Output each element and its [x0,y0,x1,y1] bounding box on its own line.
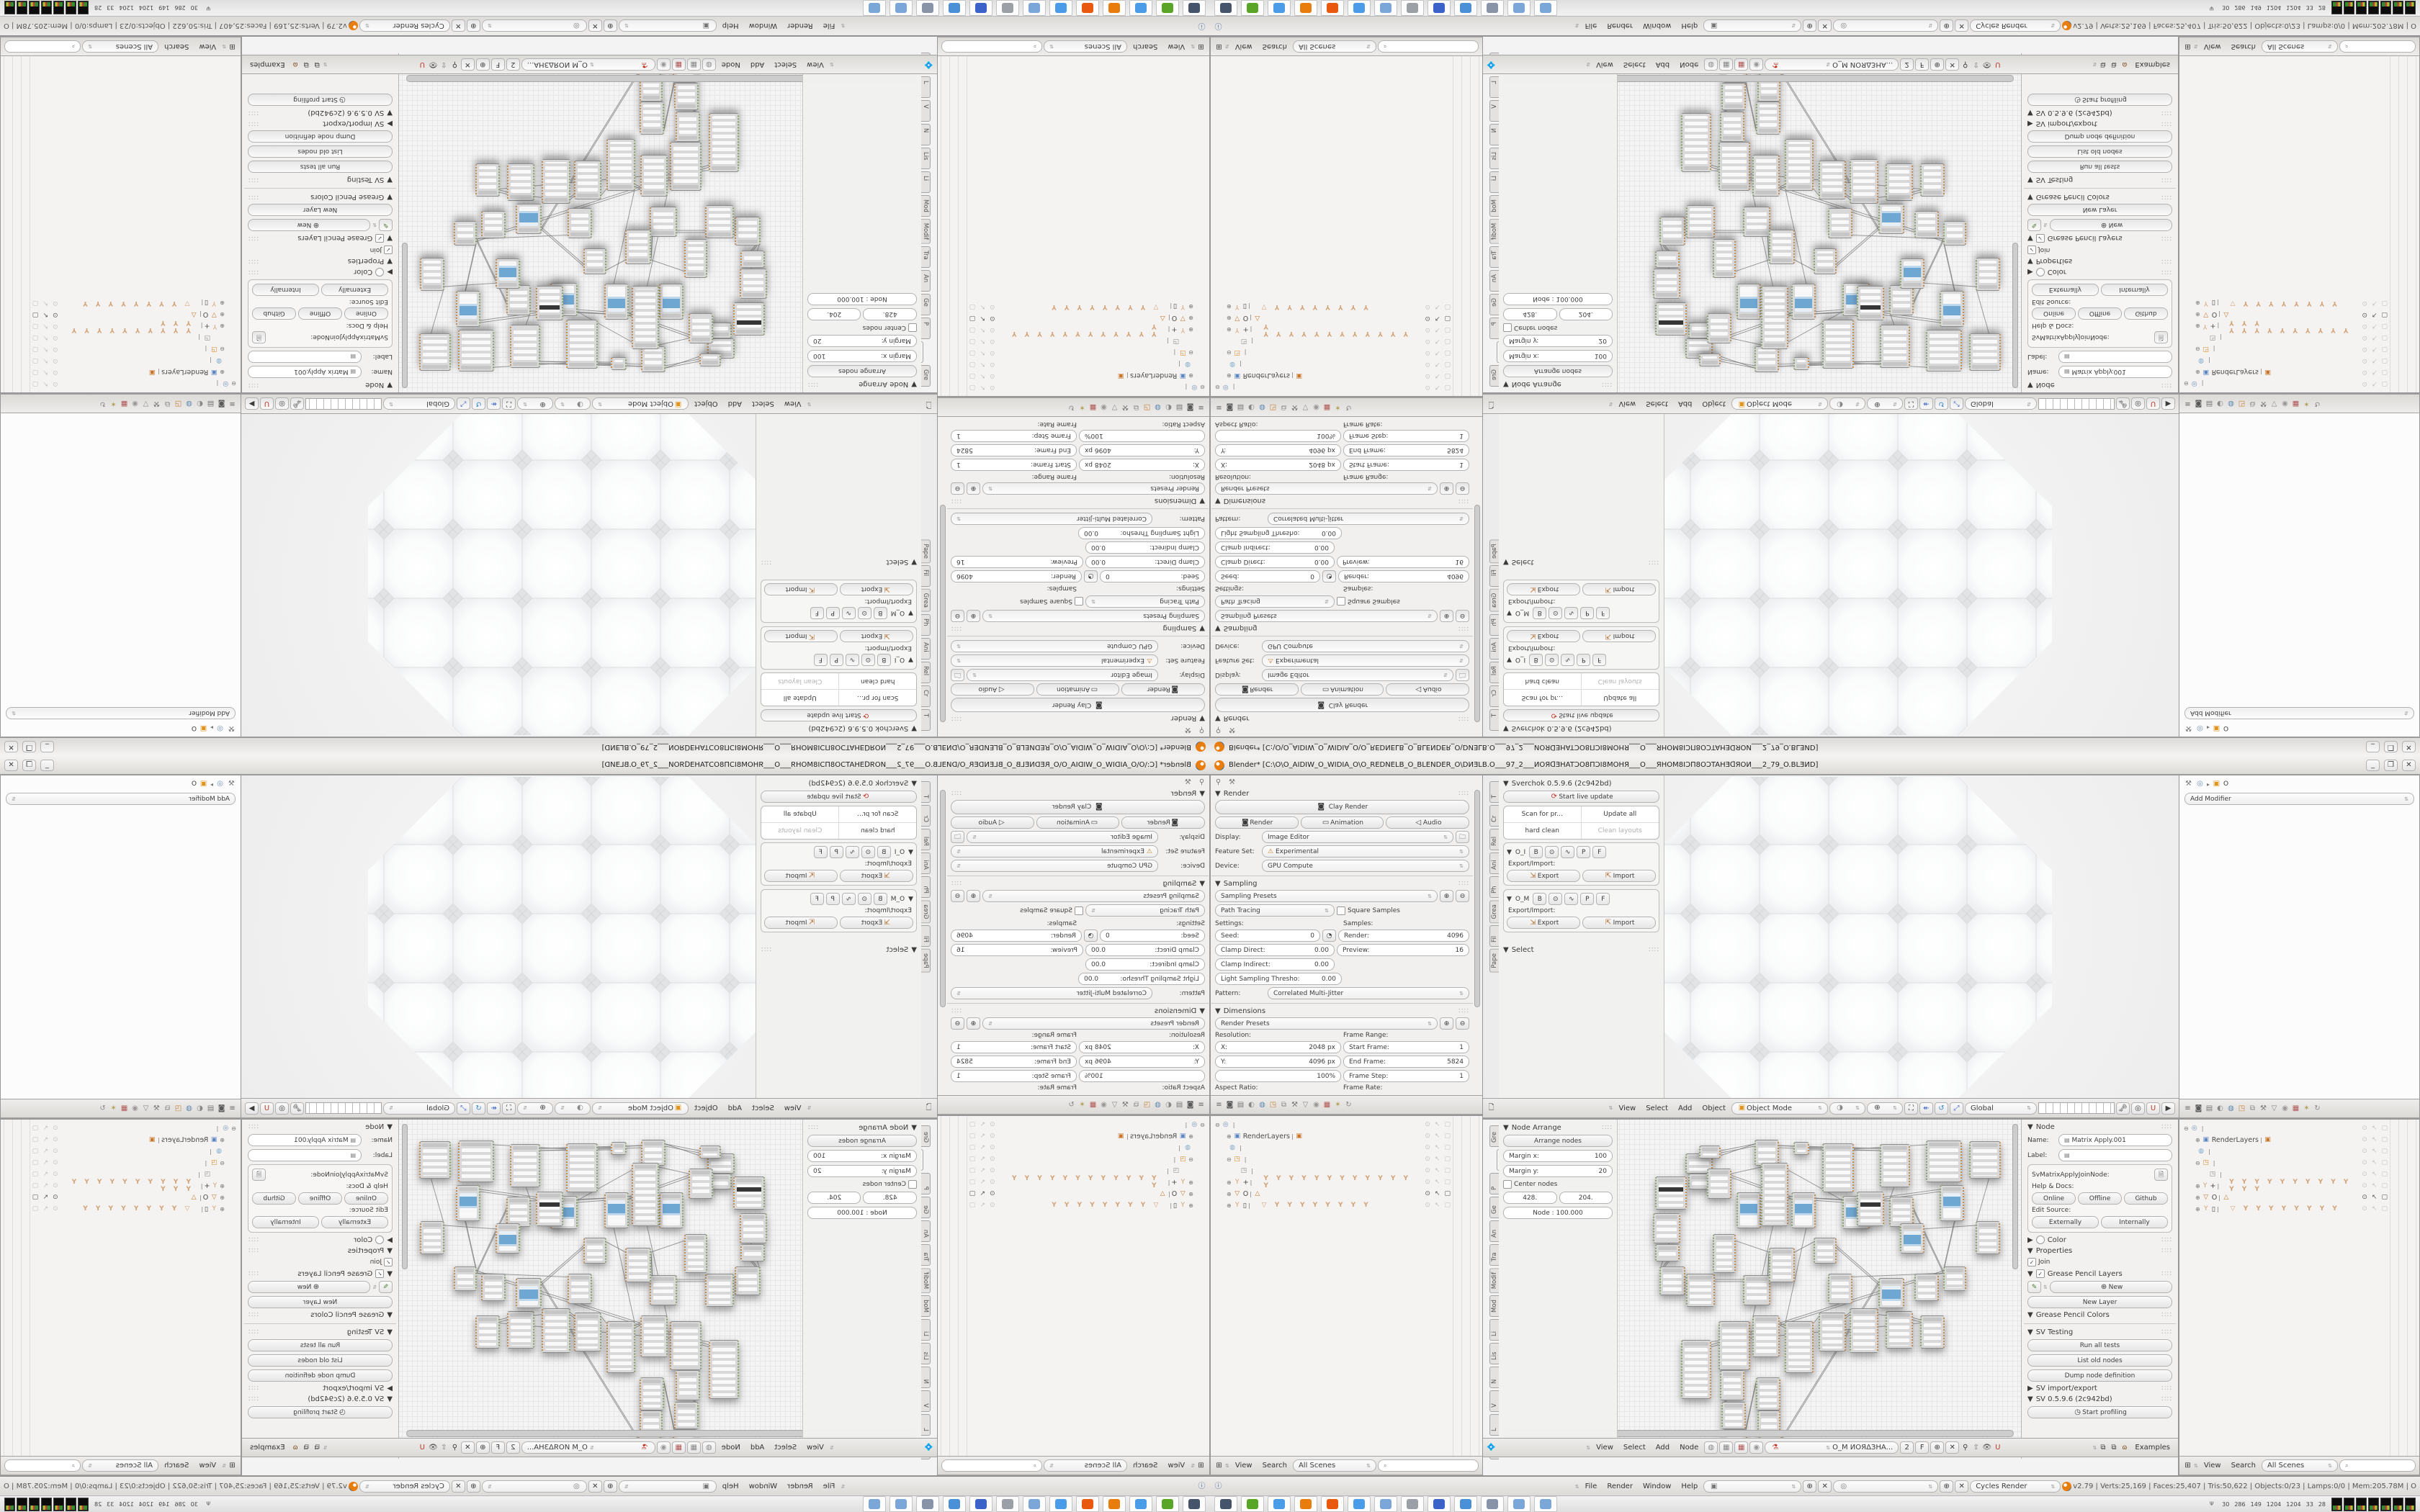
properties-tab-icon[interactable]: ◉ [2280,1104,2290,1113]
node-n-panel-scrollbar[interactable] [402,243,408,388]
start-profiling-button[interactable]: ◷Start profiling [2027,94,2172,106]
node-category-tab[interactable]: An [921,270,931,292]
restriction-toggles[interactable]: ⊙↖▢ [967,384,995,391]
restriction-toggles[interactable]: ⊙↖▢ [2362,1125,2390,1132]
node-category-tab[interactable]: Tra [1489,246,1499,268]
orientation-select[interactable]: Global⇅ [1965,398,2037,410]
shader-nodes-button[interactable]: ◍ [1704,58,1718,71]
restriction-toggles[interactable]: ⊙↖▢ [2362,311,2390,318]
sverchok-node[interactable] [1718,1321,1750,1370]
restriction-toggles[interactable]: ⊙↖▢ [967,1167,995,1174]
end-frame-field[interactable]: End Frame:5824 [951,1056,1077,1068]
online-docs-button[interactable]: Online [344,1192,388,1205]
resolution-percent-field[interactable]: 100% [1079,430,1205,442]
outliner-search-input[interactable]: ⌕ [4,40,81,53]
node-tree-select[interactable]: ⚗⇅ O_M ИОЯΔЗНА... [521,58,655,71]
paste-icon[interactable]: ⧉ [2109,1443,2118,1452]
shader-nodes-button[interactable]: ◍ [702,1441,716,1454]
sverchok-node[interactable] [1878,1278,1904,1308]
outliner-row[interactable]: ⊕ ▣ RenderLayers | ▣ ⊙↖▢ [1214,370,1453,382]
update-all-button[interactable]: Update all [761,689,839,706]
restriction-toggles[interactable]: ⊙↖▢ [2362,1182,2390,1189]
outliner-row[interactable]: ⊖ ◳ | ⊙↖▢ [2182,343,2390,355]
properties-tab-icon[interactable]: ⚒ [1121,402,1130,412]
node-node-menu[interactable]: Node [1675,60,1703,68]
window-titlebar[interactable]: Blender* [C:\O\O_AIDIW_O_WIDIA_O\O_REDNE… [1210,756,2420,775]
sverchok-node[interactable] [689,1169,713,1199]
outliner-item-label[interactable]: + [204,323,210,330]
node-category-tab[interactable]: Tra [921,246,931,268]
outliner-row[interactable]: ◍ | ⊙↖▢ [967,1142,1206,1153]
node-category-tab[interactable]: Ge [921,1197,931,1218]
restriction-toggles[interactable]: ⊙↖▢ [2362,300,2390,307]
gp-colors-panel-header[interactable]: ▼Grease Pencil Colors∷∷ [2027,193,2172,201]
bake-button[interactable]: B [874,893,887,905]
properties-tab-icon[interactable]: ⧉ [163,399,172,408]
sverchok-node[interactable] [611,1142,627,1155]
system-monitor-graph[interactable] [41,1,52,15]
margin-y-field[interactable]: Margin y:20 [807,1165,917,1177]
clamp-direct-field[interactable]: Clamp Direct:0.00 [1085,556,1205,568]
samples-preview-field[interactable]: Preview:16 [951,556,1083,568]
restriction-toggles[interactable]: ⊙↖▢ [1425,1144,1453,1151]
export-button[interactable]: ⇲Export [840,583,913,595]
resolution-y-field[interactable]: Y:4096 px [1079,1056,1205,1068]
viewport-add-menu[interactable]: Add [724,400,746,408]
import-button[interactable]: ⇱Import [764,917,838,929]
sverchok-node[interactable] [568,1274,592,1304]
online-docs-button[interactable]: Online [2032,1192,2076,1205]
remove-preset-button[interactable]: ⊖ [1456,890,1469,902]
scene-select[interactable]: ◎⇅ [482,1480,587,1493]
sampling-panel-header[interactable]: ▼Sampling∷∷ [1215,880,1469,888]
system-monitor-graph[interactable] [66,1,76,15]
system-monitor-graph[interactable] [2393,1498,2403,1511]
render-presets-select[interactable]: Render Presets⇅ [982,1017,1205,1030]
properties-tab-icon[interactable]: ↻ [1344,402,1353,412]
outliner-row[interactable]: ⊖ ◎ | ⊙↖▢ [967,1119,1206,1130]
system-monitor-graph[interactable] [2331,1,2342,15]
properties-tab-icon[interactable]: ↻ [98,399,107,408]
sverchok-node[interactable] [568,208,592,238]
sverchok-node[interactable] [1926,330,1962,372]
fake-user-button[interactable]: F [810,607,824,619]
sverchok-node[interactable] [684,239,707,278]
properties-tab-icon[interactable]: ◙ [1225,402,1234,412]
outliner-row[interactable]: ⊖ ◎ | ⊙↖▢ [2182,1122,2390,1134]
random-seed-icon[interactable]: ◔ [1322,570,1336,582]
taskbar-app-icon[interactable] [1374,0,1397,16]
node-category-tab[interactable]: Li [921,171,931,193]
clamp-direct-field[interactable]: Clamp Direct:0.00 [1215,556,1335,568]
sv-testing-panel-header[interactable]: ▼SV Testing∷∷ [2027,176,2172,184]
properties-tab-icon[interactable]: ▤ [206,399,215,408]
unlink-tree-button[interactable]: ✕ [1945,1441,1959,1454]
restriction-toggles[interactable]: ⊙↖▢ [30,1171,58,1178]
node-category-tab[interactable]: Ge [1489,294,1499,315]
samples-render-field[interactable]: Render:4096 [1338,930,1469,942]
file-menu[interactable]: File [819,22,840,30]
properties-tab-icon[interactable]: ◉ [1099,1100,1108,1110]
expand-toggle[interactable]: ⊕ [2195,323,2200,330]
sverchok-node[interactable] [1686,1274,1715,1307]
maximize-button[interactable]: ❐ [2384,742,2398,753]
restriction-toggles[interactable]: ⊙↖▢ [1425,1190,1453,1197]
tool-shelf-tab[interactable]: Grea [921,900,931,923]
properties-tab-icon[interactable]: ✶ [1333,1100,1343,1110]
show-viewport-button[interactable]: ⊙ [1545,846,1559,858]
properties-tab-icon[interactable]: ◐ [1164,1100,1173,1110]
sverchok-panel-header[interactable]: ▼Sverchok 0.5.9.6 (2c942bd) [1503,724,1659,732]
sverchok-node[interactable] [640,155,668,197]
restriction-toggles[interactable]: ⊙↖▢ [2362,1136,2390,1143]
node-select-menu[interactable]: Select [770,60,801,68]
restriction-toggles[interactable]: ⊙↖▢ [967,315,995,322]
screen-layout-select[interactable]: ▣⇅ [619,19,717,32]
outliner-row[interactable]: ⊕ Y + | Y Y Y Y Y Y Y Y Y Y Y Y Y ⊙↖▢ [30,320,238,332]
sverchok-node[interactable] [1756,1377,1780,1410]
properties-tab-icon[interactable]: ◳ [1142,1100,1152,1110]
run-all-tests-button[interactable]: Run all tests [2027,1339,2172,1351]
sverchok-node[interactable] [1828,208,1852,238]
sverchok-node[interactable] [1653,1213,1680,1243]
outliner-item-label[interactable]: ▯ [1173,1202,1177,1210]
render-menu[interactable]: Render [783,1482,817,1490]
sverchok-node[interactable] [583,248,606,274]
remove-preset-button[interactable]: ⊖ [1456,1017,1469,1030]
clean-layouts-button[interactable]: Clean layouts [761,673,839,689]
mode-select[interactable]: ▣ Object Mode⇅ [1731,398,1828,410]
taskbar-app-icon[interactable] [1103,0,1126,16]
margin-x-field[interactable]: Margin x:100 [1503,1150,1613,1162]
online-docs-button[interactable]: Online [2032,307,2076,320]
outliner-display-select[interactable]: All Scenes⇅ [82,40,158,53]
tool-shelf-tab[interactable]: Rel [1489,829,1499,850]
restriction-toggles[interactable]: ⊙↖▢ [1425,384,1453,391]
sverchok-nodes-button[interactable]: ◉ [1749,58,1763,71]
sverchok-node[interactable] [574,161,601,199]
docs-icon-button[interactable]: 🗎 [252,1169,266,1181]
expand-toggle[interactable]: ⊕ [1188,1191,1193,1197]
outliner-row[interactable]: ⊕ ▣ RenderLayers | ▣ ⊙↖▢ [1214,1130,1453,1142]
node-category-tab[interactable]: N [921,1367,931,1388]
bake-button[interactable]: B [877,654,891,666]
sverchok-node[interactable] [733,1176,765,1210]
taskbar-app-icon[interactable] [889,1496,913,1512]
properties-tab-icon[interactable]: ▦ [120,399,129,408]
start-live-update-button[interactable]: ⟳Start live update [761,709,917,721]
node-add-menu[interactable]: Add [746,60,768,68]
delete-layout-button[interactable]: ✕ [1818,1480,1832,1493]
clean-layouts-button[interactable]: Clean layouts [1582,823,1659,839]
sverchok-node[interactable] [641,1140,665,1166]
properties-tab-icon[interactable]: ◳ [1142,402,1152,412]
restriction-toggles[interactable]: ⊙↖▢ [30,380,58,387]
expand-toggle[interactable]: ⊕ [2195,300,2200,307]
sverchok-node[interactable] [456,1185,480,1221]
node-category-tab[interactable]: L [1489,1414,1499,1436]
node-category-tab[interactable]: Lis [1489,1343,1499,1364]
sverchok-node[interactable] [659,1192,684,1228]
online-docs-button[interactable]: Online [344,307,388,320]
sverchok-node[interactable] [709,1340,739,1399]
sverchok-node[interactable] [1754,1140,1779,1166]
tool-shelf-tab[interactable]: Ani [1489,638,1499,660]
render-menu[interactable]: Render [1603,1482,1637,1490]
fake-user-button[interactable]: F [1592,846,1606,858]
window-titlebar[interactable]: Blender* [C:\O\O_AIDIW_O_WIDIA_O\O_REDNE… [1210,737,2420,756]
properties-tab-icon[interactable]: ⧉ [163,1104,172,1113]
animate-button[interactable]: ∿ [1564,893,1578,905]
sverchok-node[interactable] [674,83,699,110]
outliner-row[interactable]: ◍ | ⊙↖▢ [30,355,238,366]
outliner-view-menu[interactable]: View [194,1462,220,1470]
node-panel-header[interactable]: ▼Node∷∷ [248,1123,393,1131]
pin-icon[interactable]: ⚲ [450,1443,460,1452]
expand-toggle[interactable]: ⊖ [1188,1156,1193,1163]
wrench-icon[interactable]: ⚒ [1183,778,1193,787]
render-panel-header[interactable]: ▼ Render∷∷ [951,714,1205,722]
light-sampling-field[interactable]: Light Sampling Thresho:0.00 [1215,527,1342,539]
process-button[interactable]: P [826,607,840,619]
file-menu[interactable]: File [1581,1482,1602,1490]
properties-scrollbar[interactable] [940,505,946,722]
import-button[interactable]: ⇱Import [764,630,838,642]
snap-button[interactable]: U [260,1102,274,1115]
sverchok-node[interactable] [1819,1313,1846,1351]
tool-shelf-tab[interactable]: Ani [921,852,931,874]
outliner-item-label[interactable]: O [2212,1194,2217,1202]
pattern-select[interactable]: Correlated Multi-Jitter⇅ [1268,987,1469,999]
sverchok-node[interactable] [1718,142,1750,191]
sverchok-node[interactable] [566,1143,598,1192]
display-select[interactable]: Image Editor⇅ [967,831,1158,843]
viewport-object-menu[interactable]: Object [1698,400,1730,408]
outliner-search-menu[interactable]: Search [1258,1462,1291,1470]
tool-shelf-tab[interactable]: Ani [921,638,931,660]
sverchok-node[interactable] [1850,159,1878,204]
restriction-toggles[interactable]: ⊙↖▢ [967,326,995,333]
node-category-tab[interactable]: N [1489,1367,1499,1388]
add-modifier-select[interactable]: Add Modifier⇅ [2184,793,2414,805]
compositing-nodes-button[interactable]: ▦ [687,58,701,71]
node-scale-field[interactable]: Node : 100.000 [807,1207,917,1219]
node-category-tab[interactable]: Gre [921,365,931,387]
node-category-tab[interactable]: Tra [1489,1244,1499,1266]
mode-select[interactable]: ▣ Object Mode⇅ [592,398,689,410]
add-layout-button[interactable]: ⊕ [1803,1480,1816,1493]
sverchok-node[interactable] [1857,1192,1884,1226]
outliner-display-select[interactable]: All Scenes⇅ [82,1459,158,1472]
properties-tab-icon[interactable]: ◍ [2226,399,2236,408]
tool-shelf-tab[interactable]: Fil [921,925,931,947]
expand-toggle[interactable]: ⊖ [1200,1122,1205,1128]
node-category-tab[interactable]: V [1489,100,1499,122]
hard-clean-button[interactable]: hard clean [1504,823,1582,839]
wrench-icon[interactable]: ⚒ [1183,725,1193,734]
taskbar-app-icon[interactable] [1454,1496,1477,1512]
tree-users-button[interactable]: 2 [506,58,520,71]
node-category-tab[interactable]: Gre [921,1125,931,1147]
restriction-toggles[interactable]: ⊙↖▢ [1425,349,1453,356]
taskbar-app-icon[interactable] [1129,1496,1152,1512]
render-button[interactable]: ◙Render [1121,683,1205,696]
arrange-nodes-button[interactable]: Arrange nodes [1503,365,1613,377]
outliner-item-label[interactable]: O [1243,1190,1248,1198]
fake-user-button[interactable]: F [814,654,828,666]
expand-toggle[interactable]: ⊖ [2195,1160,2200,1166]
gp-new-button[interactable]: ⊕New [2050,219,2172,231]
dimensions-panel-header[interactable]: ▼Dimensions∷∷ [951,1007,1205,1015]
tool-shelf-tab[interactable]: Rel [1489,662,1499,683]
arrange-nodes-button[interactable]: Arrange nodes [807,365,917,377]
color-checkbox[interactable] [2036,1236,2045,1244]
animate-button[interactable]: ∿ [842,607,856,619]
restriction-toggles[interactable]: ⊙↖▢ [2362,334,2390,341]
tool-shelf-tab[interactable]: Rel [921,662,931,683]
node-category-tab[interactable]: P [1489,1173,1499,1194]
file-menu[interactable]: File [1581,22,1602,30]
outliner-item-label[interactable]: + [1243,1179,1249,1187]
node-category-tab[interactable]: Tra [921,1244,931,1266]
taskbar-app-icon[interactable] [1076,1496,1099,1512]
lock-interface-button[interactable]: 🗀 [951,669,964,681]
expand-toggle[interactable]: ⊕ [220,1194,225,1201]
sampling-presets-select[interactable]: Sampling Presets⇅ [1215,610,1438,622]
hard-clean-button[interactable]: hard clean [839,673,917,689]
node-category-tab[interactable]: Li [1489,1319,1499,1341]
restriction-toggles[interactable]: ⊙↖▢ [1425,1121,1453,1128]
node-add-menu[interactable]: Add [1652,1444,1674,1452]
snap-icon[interactable]: U [418,60,427,69]
node-n-panel-scrollbar[interactable] [2012,1124,2018,1269]
sverchok-node[interactable] [542,1308,570,1353]
sverchok-node[interactable] [420,258,444,291]
tool-shelf-tab[interactable]: Fil [1489,565,1499,587]
properties-tab-icon[interactable]: ◙ [217,399,226,408]
restriction-toggles[interactable]: ⊙↖▢ [967,361,995,368]
properties-tab-icon[interactable]: ✶ [1077,1100,1087,1110]
sverchok-node[interactable] [1969,1141,2001,1179]
properties-tab-icon[interactable]: ▤ [1175,1100,1184,1110]
restriction-toggles[interactable]: ⊙↖▢ [1425,303,1453,310]
sverchok-node[interactable] [458,330,494,372]
outliner-item-label[interactable]: RenderLayers [161,1136,208,1144]
outliner-item-label[interactable]: O [203,311,208,319]
end-frame-field[interactable]: End Frame:5824 [951,444,1077,456]
node-category-tab[interactable]: Gre [1489,365,1499,387]
render-engine-select[interactable]: Cycles Render⇅ [359,1480,450,1493]
viewport-add-menu[interactable]: Add [1674,1104,1696,1112]
restriction-toggles[interactable]: ⊙↖▢ [2362,323,2390,330]
copy-icon[interactable]: ⧉ [2098,60,2107,69]
restriction-toggles[interactable]: ⊙↖▢ [1425,326,1453,333]
node-select-menu[interactable]: Select [770,1444,801,1452]
viewport-add-menu[interactable]: Add [1674,400,1696,408]
resolution-x-field[interactable]: X:2048 px [1215,459,1341,471]
tool-shelf-tab[interactable]: Grea [1489,589,1499,612]
restriction-toggles[interactable]: ⊙↖▢ [967,1202,995,1209]
node-category-tab[interactable]: Mod [1489,1295,1499,1317]
resolution-x-field[interactable]: X:2048 px [1079,1041,1205,1053]
tool-shelf-tab[interactable]: T [921,781,931,803]
taskbar-app-icon[interactable] [1214,0,1237,16]
show-viewport-button[interactable]: ⊙ [858,607,871,619]
samples-preview-field[interactable]: Preview:16 [1337,556,1469,568]
arrange-y-field[interactable]: 204. [807,1192,861,1204]
properties-tab-icon[interactable]: ◐ [2215,1104,2225,1113]
sverchok-node[interactable] [1752,1315,1780,1357]
properties-tab-icon[interactable]: ◙ [2194,399,2203,408]
export-button[interactable]: ⇲Export [840,870,913,882]
outliner-item-label[interactable]: O [203,1194,208,1202]
node-name-input[interactable]: ▤ Matrix Apply.001 [248,1134,362,1146]
arrange-x-field[interactable]: 428. [1503,308,1557,320]
expand-toggle[interactable]: ⊕ [1188,304,1193,310]
properties-tab-icon[interactable]: ✶ [109,399,118,408]
mode-select[interactable]: ▣ Object Mode⇅ [592,1102,689,1115]
taskbar-app-icon[interactable] [1156,0,1179,16]
offline-docs-button[interactable]: Offline [2078,1192,2122,1205]
sverchok-node[interactable] [458,1140,494,1182]
restriction-toggles[interactable]: ⊙↖▢ [1425,315,1453,322]
outliner-row[interactable]: ⊕ ▣ RenderLayers | ▣ ⊙↖▢ [2182,366,2390,378]
new-tree-button[interactable]: ⊕ [1930,1441,1944,1454]
color-panel-header[interactable]: ▶Color∷∷ [2027,1236,2172,1244]
minimize-button[interactable]: _ [40,760,54,771]
properties-tab-icon[interactable]: ◳ [2237,1104,2246,1113]
help-menu[interactable]: Help [1677,22,1702,30]
sverchok-node[interactable] [1857,286,1884,320]
edit-internally-button[interactable]: Internally [2101,1216,2168,1228]
layers-widget[interactable] [2038,1102,2115,1114]
outliner-row[interactable]: ⊖ ◎ | ⊙↖▢ [30,1122,238,1134]
outliner-item-label[interactable]: O [2212,311,2217,319]
import-button[interactable]: ⇱Import [764,870,838,882]
resolution-y-field[interactable]: Y:4096 px [1215,1056,1341,1068]
node-tree-select[interactable]: ⚗⇅ O_M ИОЯΔЗНА... [1765,1441,1899,1454]
system-monitor-graph[interactable] [2368,1498,2379,1511]
import-button[interactable]: ⇱Import [1582,583,1656,595]
outliner-row[interactable]: ⊕ Y + | Y Y Y Y Y Y Y Y Y Y Y Y Y ⊙↖▢ [2182,1180,2390,1192]
sverchok-node[interactable] [456,291,480,327]
sverchok-node[interactable] [420,1221,444,1254]
edit-internally-button[interactable]: Internally [252,1216,319,1228]
outliner-row[interactable]: ◍ | ⊙↖▢ [30,1146,238,1157]
info-editor-icon[interactable]: ⓘ [1197,1482,1206,1491]
node-scale-field[interactable]: Node : 100.000 [1503,293,1613,305]
viewport-view-menu[interactable]: View [1614,1104,1640,1112]
outliner-search-input[interactable]: ⌕ [941,40,1042,53]
texture-nodes-button[interactable]: ▦ [1734,1441,1748,1454]
properties-tab-icon[interactable]: ▽ [2269,399,2279,408]
node-category-tab[interactable] [921,341,923,363]
integrator-select[interactable]: Path Tracing⇅ [1085,904,1205,917]
system-monitor-graph[interactable] [41,1498,52,1511]
properties-tab-icon[interactable]: ◳ [1268,402,1278,412]
node-category-tab[interactable]: Lis [921,148,931,169]
start-frame-field[interactable]: Start Frame:1 [1343,459,1469,471]
texture-nodes-button[interactable]: ▦ [1734,58,1748,71]
properties-tab-icon[interactable]: ◙ [1186,402,1195,412]
sverchok-node[interactable] [1889,285,1914,315]
edit-externally-button[interactable]: Externally [2032,284,2099,296]
render-presets-select[interactable]: Render Presets⇅ [1215,1017,1438,1030]
node-category-tab[interactable]: L [1489,76,1499,98]
sverchok-node[interactable] [516,1278,542,1308]
sv-version-panel-header[interactable]: ▼SV 0.5.9.6 (2c942bd)∷∷ [2027,109,2172,117]
sverchok-node[interactable] [1655,302,1687,336]
